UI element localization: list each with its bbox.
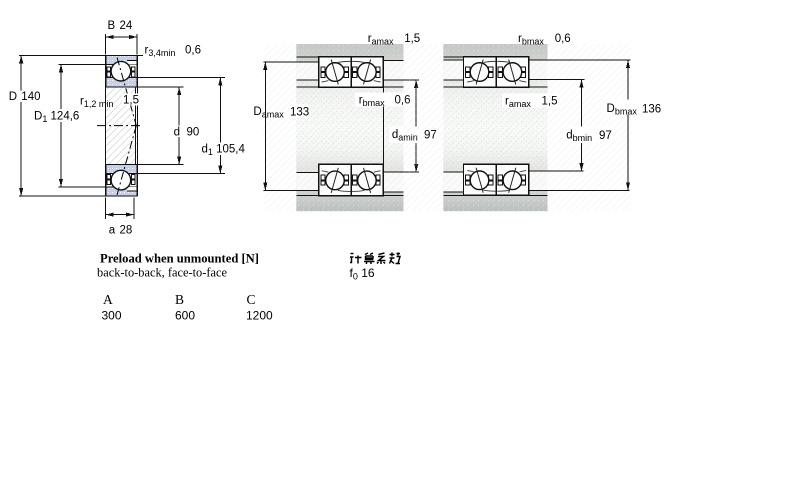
svg-text:Preload when unmounted [N]: Preload when unmounted [N] — [100, 252, 259, 266]
svg-text:A: A — [103, 292, 113, 307]
svg-text:300: 300 — [102, 309, 122, 323]
svg-text:28: 28 — [120, 225, 133, 237]
svg-text:D: D — [9, 91, 17, 103]
svg-text:140: 140 — [21, 91, 40, 103]
svg-text:24: 24 — [120, 20, 133, 32]
svg-text:0,6: 0,6 — [555, 33, 571, 45]
svg-text:r3,4min: r3,4min — [145, 45, 176, 59]
svg-text:1200: 1200 — [246, 309, 273, 323]
svg-text:rbmax: rbmax — [518, 33, 544, 47]
svg-text:f0 16: f0 16 — [350, 266, 375, 282]
svg-text:ramax: ramax — [368, 33, 394, 47]
svg-text:600: 600 — [175, 309, 195, 323]
svg-text:133: 133 — [290, 106, 309, 118]
svg-text:D1 124,6: D1 124,6 — [34, 111, 79, 125]
svg-text:a: a — [109, 225, 116, 237]
svg-text:0,6: 0,6 — [185, 45, 201, 57]
svg-text:B: B — [108, 20, 116, 32]
svg-text:136: 136 — [642, 103, 661, 115]
svg-text:1,5: 1,5 — [123, 95, 139, 107]
svg-text:97: 97 — [599, 130, 612, 142]
svg-text:90: 90 — [187, 127, 200, 139]
svg-text:1,5: 1,5 — [404, 33, 420, 45]
svg-text:d: d — [174, 127, 180, 139]
svg-text:1,5: 1,5 — [542, 96, 558, 108]
svg-text:back-to-back, face-to-face: back-to-back, face-to-face — [97, 266, 228, 280]
svg-text:C: C — [247, 292, 256, 307]
svg-text:B: B — [175, 292, 184, 307]
